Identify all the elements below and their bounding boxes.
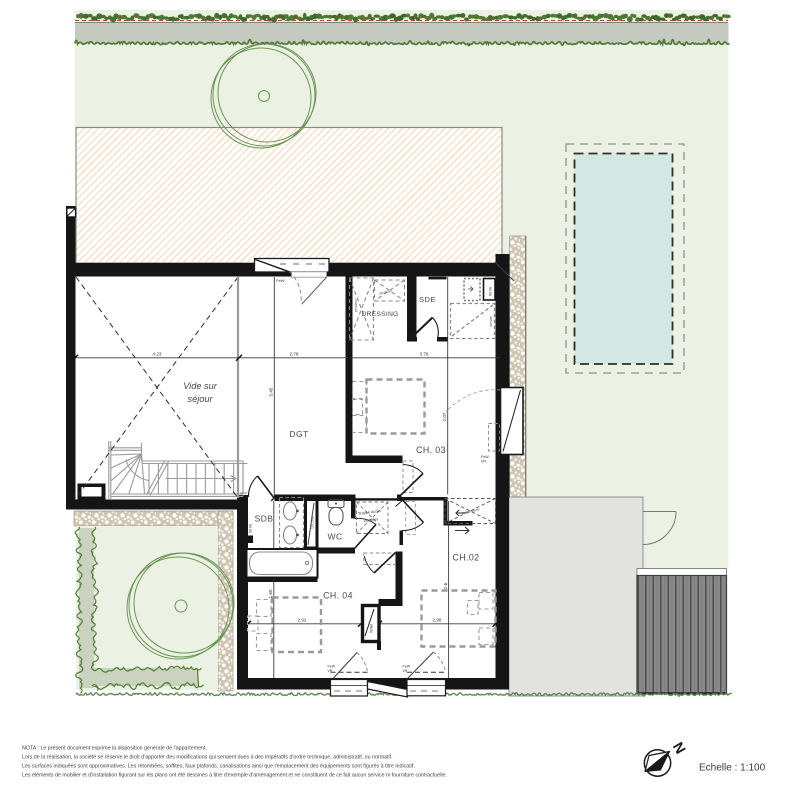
svg-text:FeW: FeW [481,455,489,459]
svg-text:60.08: 60.08 [249,524,253,533]
svg-text:CH.02: CH.02 [453,553,480,563]
svg-text:5.45: 5.45 [269,387,274,396]
svg-text:60/80: 60/80 [370,624,374,633]
svg-text:SDB: SDB [255,514,274,524]
svg-text:1/V coul.: 1/V coul. [311,516,315,529]
svg-text:1.60: 1.60 [268,589,273,598]
svg-text:séjour: séjour [187,394,213,404]
svg-text:FeW: FeW [328,665,336,669]
svg-text:Vide sur: Vide sur [183,381,217,391]
svg-text:60.08: 60.08 [489,287,493,296]
svg-text:penderie: penderie [354,299,358,312]
svg-text:4.23: 4.23 [153,352,162,357]
svg-text:meuble: meuble [489,316,493,327]
svg-text:VR: VR [481,460,486,464]
svg-text:FeW: FeW [403,665,411,669]
svg-text:Les surfaces indiquées sont ap: Les surfaces indiquées sont approximativ… [22,764,415,770]
svg-text:3.76: 3.76 [420,352,429,357]
svg-text:2.92: 2.92 [298,618,307,623]
svg-text:WC: WC [328,532,343,542]
svg-text:Echelle : 1:100: Echelle : 1:100 [699,763,766,774]
svg-text:SDE: SDE [419,295,436,304]
svg-text:VR: VR [403,669,408,673]
svg-text:2.78: 2.78 [290,352,299,357]
svg-text:DGT: DGT [289,429,308,439]
svg-text:Les éléments de mobilier et d': Les éléments de mobilier et d'installati… [22,773,447,779]
svg-text:2.07: 2.07 [442,412,447,421]
svg-text:VR: VR [328,669,333,673]
svg-text:2.6: 2.6 [443,582,448,589]
svg-text:2.98: 2.98 [433,618,442,623]
svg-text:CH. 03: CH. 03 [416,445,446,455]
svg-text:Lors de la réalisation, la soc: Lors de la réalisation, la société se ré… [22,755,393,761]
svg-text:FeW: FeW [276,278,285,283]
svg-text:DRESSING: DRESSING [361,311,398,318]
svg-text:NOTA : Le présent document exp: NOTA : Le présent document exprime la di… [22,746,207,752]
svg-text:CH. 04: CH. 04 [323,591,353,601]
